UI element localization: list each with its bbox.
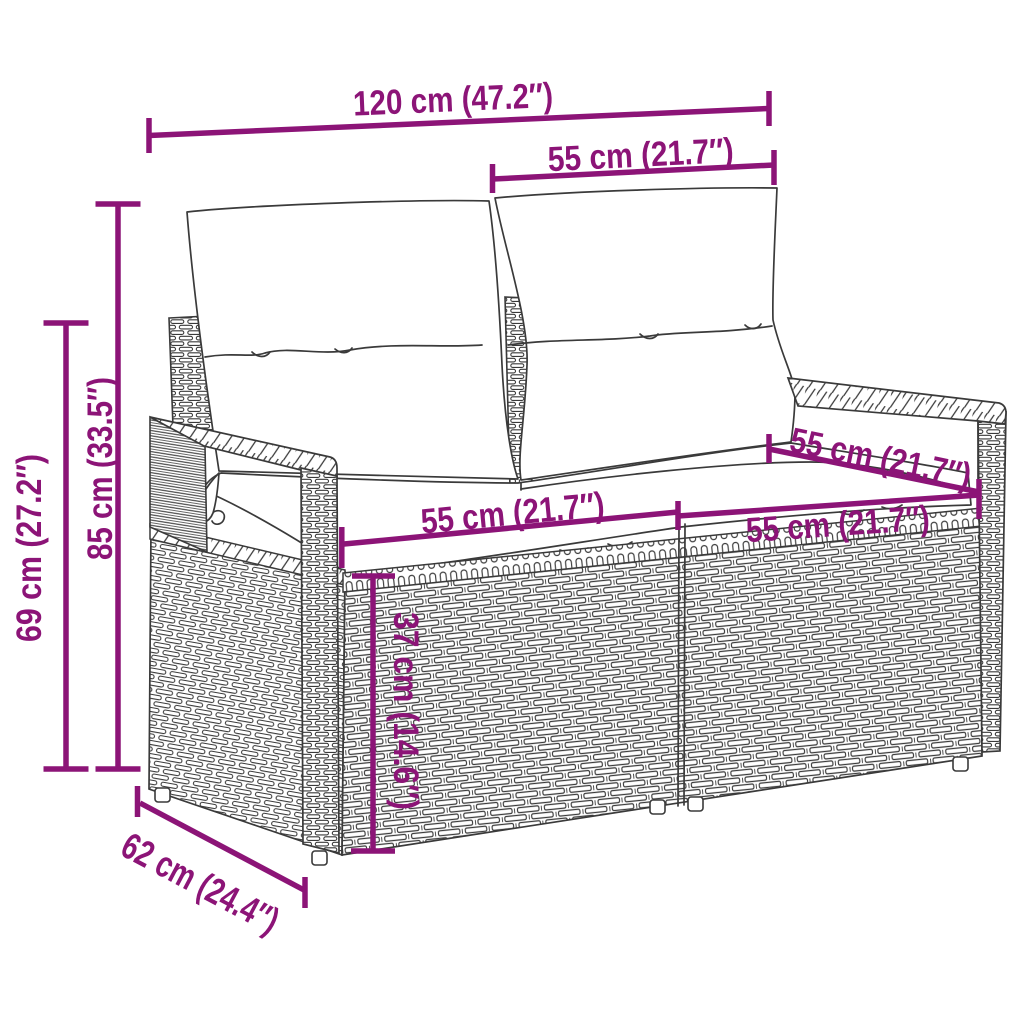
svg-text:37 cm (14.6″): 37 cm (14.6″): [386, 612, 425, 810]
svg-text:69 cm (27.2″): 69 cm (27.2″): [10, 454, 49, 642]
svg-text:85 cm (33.5″): 85 cm (33.5″): [81, 377, 120, 560]
